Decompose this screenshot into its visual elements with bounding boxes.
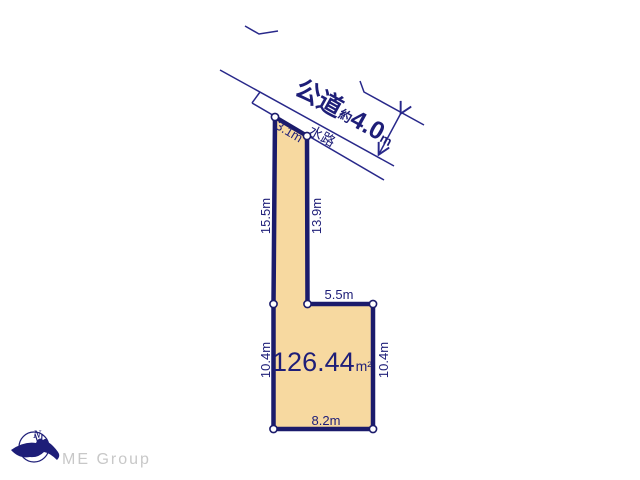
area-unit-text: m² [356,358,373,374]
dim-right-lower: 10.4m [376,342,391,378]
dim-strip-right: 13.9m [309,198,324,234]
vertex-marker [369,425,376,432]
vertex-marker [369,300,376,307]
waterway-end-cap-line [252,92,260,103]
dim-left-upper: 15.5m [258,198,273,234]
land-plot-diagram: 公道約4.0m 水路 3.1m 15.5m 13.9m 5.5m 10.4m 1… [0,0,640,480]
plot-map-svg: 公道約4.0m 水路 3.1m 15.5m 13.9m 5.5m 10.4m 1… [0,0,640,480]
bird-icon [11,439,59,460]
boundary-chevron-mark [245,26,278,34]
dim-bottom: 8.2m [312,413,341,428]
area-value-text: 126.44 [272,347,355,377]
vertex-marker [304,300,311,307]
vertex-marker [303,132,310,139]
vertex-marker [271,113,278,120]
plot-polygon [274,117,374,429]
compass-logo: N [11,427,59,462]
brand-name: ME Group [62,451,151,468]
vertex-marker [270,300,277,307]
dim-left-lower: 10.4m [258,342,273,378]
vertex-marker [270,425,277,432]
dim-notch: 5.5m [325,287,354,302]
